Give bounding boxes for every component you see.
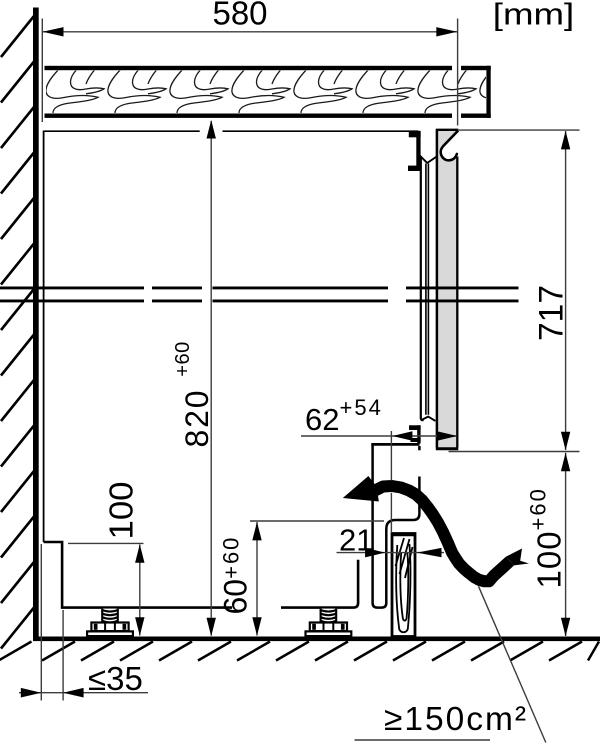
svg-text:100: 100 — [102, 482, 139, 540]
svg-text:580: 580 — [212, 0, 267, 32]
svg-text:21: 21 — [339, 523, 373, 558]
svg-text:≥150cm²: ≥150cm² — [384, 701, 528, 738]
svg-text:≤35: ≤35 — [88, 660, 143, 697]
svg-text:717: 717 — [533, 285, 571, 341]
svg-text:[mm]: [mm] — [493, 0, 575, 32]
